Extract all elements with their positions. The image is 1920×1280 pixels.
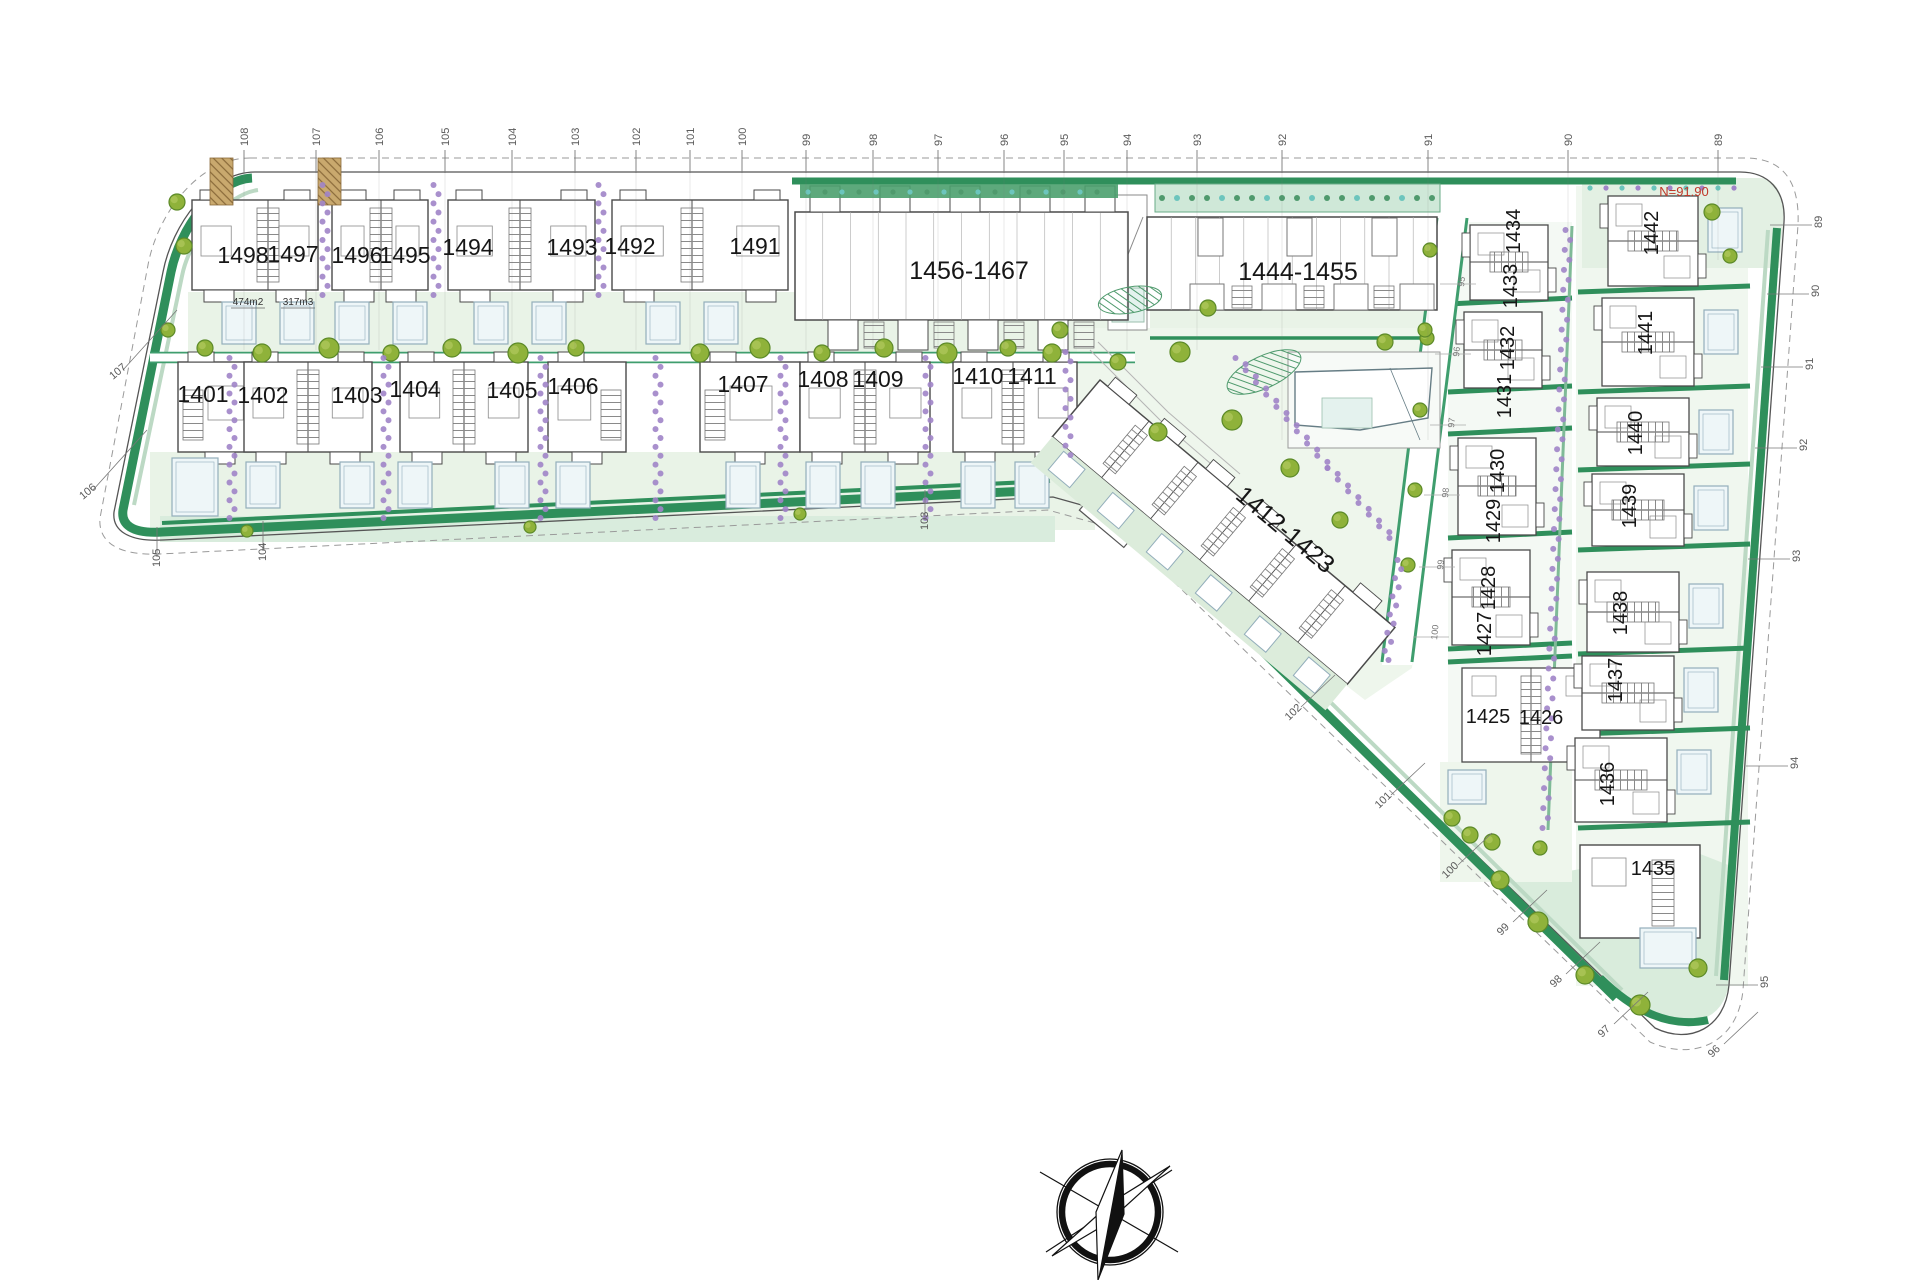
plot-label-1437: 1437: [1605, 658, 1627, 703]
contour-label-top-108: 108: [239, 128, 251, 146]
area-label-1: 317m3: [283, 297, 314, 308]
contour-label-bottom-105: 105: [151, 549, 163, 567]
area-label-0: 474m2: [233, 297, 264, 308]
contour-label-top-90: 90: [1563, 134, 1575, 146]
plot-label-1441: 1441: [1635, 311, 1657, 356]
contour-label-diagonal-101: 101: [1373, 790, 1395, 811]
plot-label-1426: 1426: [1519, 707, 1564, 729]
contour-label-right-93: 93: [1791, 550, 1803, 562]
elevation-note: N=91.90: [1659, 184, 1709, 199]
contour-label-diagonal-98: 98: [1548, 973, 1565, 990]
site-plan-drawing: 1081071061051041031021011009998979695949…: [0, 0, 1920, 1280]
contour-label-right-94: 94: [1789, 757, 1801, 769]
block-label-1456-1467: 1456-1467: [909, 257, 1029, 285]
contour-label-right-95: 95: [1759, 976, 1771, 988]
contour-label-diagonal-102: 102: [1283, 702, 1305, 723]
road-contour-label-99: 99: [1435, 559, 1446, 570]
plot-label-1438: 1438: [1610, 591, 1632, 636]
plot-label-1405: 1405: [486, 377, 537, 403]
contour-label-top-104: 104: [507, 128, 519, 146]
contour-label-top-89: 89: [1713, 134, 1725, 146]
plot-label-1440: 1440: [1625, 411, 1647, 456]
plot-label-1409: 1409: [852, 366, 903, 392]
plot-label-1410: 1410: [952, 363, 1003, 389]
contour-label-top-100: 100: [737, 128, 749, 146]
contour-label-top-99: 99: [801, 134, 813, 146]
plot-label-1496: 1496: [331, 242, 382, 268]
plot-label-1429: 1429: [1483, 499, 1505, 544]
plot-label-1439: 1439: [1619, 484, 1641, 529]
plot-label-1434: 1434: [1503, 209, 1525, 254]
plot-label-1430: 1430: [1487, 449, 1509, 494]
contour-label-bottom-104: 104: [257, 543, 269, 561]
contour-label-top-105: 105: [440, 128, 452, 146]
road-contour-label-96: 96: [1451, 346, 1462, 357]
plot-label-1442: 1442: [1641, 211, 1663, 256]
plot-label-1428: 1428: [1478, 566, 1500, 611]
contour-label-top-95: 95: [1059, 134, 1071, 146]
plot-label-1404: 1404: [389, 376, 440, 402]
plot-label-1406: 1406: [547, 373, 598, 399]
plot-label-1402: 1402: [237, 382, 288, 408]
contour-label-left-107: 107: [107, 361, 129, 382]
road-contour-label-100: 100: [1429, 624, 1441, 640]
contour-label-right-90: 90: [1810, 285, 1822, 297]
contour-label-right-89: 89: [1813, 216, 1825, 228]
north-compass-icon: [1040, 1150, 1178, 1280]
plot-label-1494: 1494: [442, 234, 493, 260]
plot-label-1498: 1498: [217, 242, 268, 268]
contour-label-top-102: 102: [631, 128, 643, 146]
plot-label-1411: 1411: [1007, 363, 1056, 389]
contour-label-top-103: 103: [570, 128, 582, 146]
plot-label-1408: 1408: [797, 366, 848, 392]
plot-label-1427: 1427: [1474, 612, 1496, 657]
contour-label-top-93: 93: [1192, 134, 1204, 146]
contour-label-top-92: 92: [1277, 134, 1289, 146]
plot-label-1491: 1491: [729, 233, 780, 259]
site-plan-page: 1081071061051041031021011009998979695949…: [0, 0, 1920, 1280]
contour-label-top-106: 106: [374, 128, 386, 146]
contour-label-right-91: 91: [1804, 358, 1816, 370]
plot-label-1492: 1492: [604, 233, 655, 259]
road-contour-label-98: 98: [1440, 487, 1451, 498]
plot-label-1436: 1436: [1597, 762, 1619, 807]
plot-label-1407: 1407: [717, 371, 768, 397]
plot-label-1495: 1495: [379, 242, 430, 268]
road-contour-label-97: 97: [1446, 417, 1457, 428]
contour-label-top-91: 91: [1423, 134, 1435, 146]
road-contour-label-95: 95: [1456, 276, 1467, 287]
plot-label-1493: 1493: [546, 234, 597, 260]
contour-label-diagonal-99: 99: [1495, 921, 1512, 938]
contour-label-top-96: 96: [999, 134, 1011, 146]
contour-label-diagonal-97: 97: [1596, 1023, 1613, 1040]
contour-label-right-92: 92: [1798, 439, 1810, 451]
contour-label-bottom-103: 103: [919, 512, 931, 530]
plot-label-1403: 1403: [331, 382, 382, 408]
plot-label-1432: 1432: [1497, 326, 1519, 371]
contour-label-top-101: 101: [685, 128, 697, 146]
contour-label-left-106: 106: [77, 481, 99, 502]
contour-label-top-107: 107: [311, 128, 323, 146]
plot-label-1431: 1431: [1494, 374, 1516, 419]
plot-label-1435: 1435: [1631, 858, 1676, 880]
plot-label-1401: 1401: [177, 381, 228, 407]
plot-label-1497: 1497: [267, 241, 318, 267]
plot-label-1433: 1433: [1500, 264, 1522, 309]
plot-label-1425: 1425: [1466, 706, 1511, 728]
contour-label-diagonal-96: 96: [1706, 1043, 1723, 1060]
block-label-1444-1455: 1444-1455: [1238, 258, 1358, 286]
contour-label-top-98: 98: [868, 134, 880, 146]
contour-label-top-94: 94: [1122, 134, 1134, 146]
contour-label-top-97: 97: [933, 134, 945, 146]
